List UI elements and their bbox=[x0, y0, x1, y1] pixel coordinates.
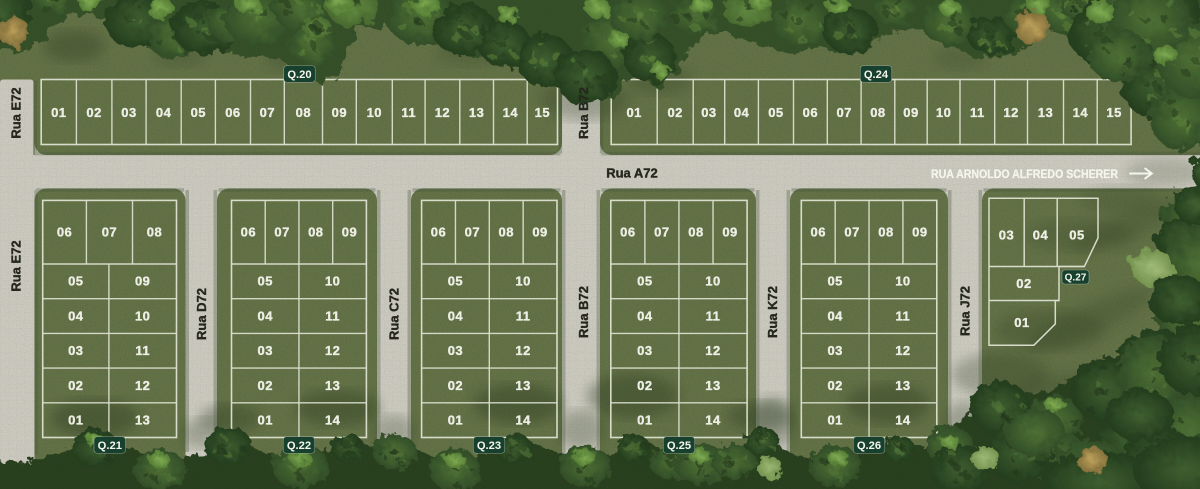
svg-text:Q.27: Q.27 bbox=[1065, 273, 1087, 284]
svg-text:Rua D72: Rua D72 bbox=[194, 288, 209, 340]
svg-text:Q.25: Q.25 bbox=[667, 440, 691, 452]
svg-text:Q.23: Q.23 bbox=[477, 440, 501, 452]
svg-text:RUA ARNOLDO ALFREDO SCHERER: RUA ARNOLDO ALFREDO SCHERER bbox=[931, 167, 1118, 181]
svg-text:Rua A72: Rua A72 bbox=[606, 166, 658, 181]
svg-text:Q.26: Q.26 bbox=[857, 440, 881, 452]
svg-text:Rua J72: Rua J72 bbox=[958, 286, 973, 336]
svg-text:Q.24: Q.24 bbox=[864, 69, 889, 81]
svg-text:Rua K72: Rua K72 bbox=[765, 286, 780, 338]
svg-text:Q.22: Q.22 bbox=[287, 440, 311, 452]
svg-text:Rua E72: Rua E72 bbox=[9, 240, 24, 291]
svg-text:Rua B72: Rua B72 bbox=[576, 286, 591, 338]
svg-text:Rua B72: Rua B72 bbox=[576, 87, 591, 139]
svg-text:Rua E72: Rua E72 bbox=[9, 87, 24, 138]
svg-text:Rua C72: Rua C72 bbox=[387, 288, 402, 340]
svg-text:Q.21: Q.21 bbox=[98, 440, 122, 452]
svg-text:Q.20: Q.20 bbox=[287, 69, 311, 81]
